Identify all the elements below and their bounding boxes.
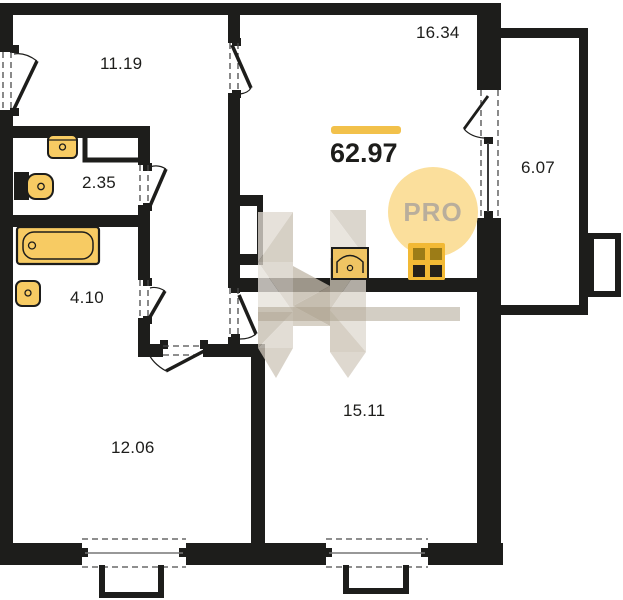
bath-sink-icon [16,281,40,306]
sink-icon [48,135,77,158]
entrance-door [14,61,37,109]
door-12-06 [166,350,206,371]
room-area-label-2-35: 2.35 [82,173,116,193]
floor-plan: 11.19 16.34 2.35 4.10 6.07 12.06 15.11 6… [0,0,623,600]
room-area-label-15-11: 15.11 [343,401,385,421]
room-area-label-4-10: 4.10 [70,288,104,308]
balcony-door [464,96,488,129]
window-sill-right [346,565,406,591]
bathtub-icon [17,227,99,264]
door-wc [150,169,166,206]
room-area-label-16-34: 16.34 [416,23,460,43]
pro-badge-label: PRO [388,167,478,257]
room-area-label-6-07: 6.07 [521,158,555,178]
door-15-11 [239,295,256,334]
neighbor-balcony [591,236,618,294]
toilet-icon [14,172,53,200]
total-area-accent-bar [331,126,401,134]
kitchen-sink-icon [332,248,368,279]
door-bathroom [150,291,165,317]
room-area-label-11-19: 11.19 [100,54,142,74]
room-area-label-12-06: 12.06 [111,438,155,458]
window-sill-left [102,565,161,595]
total-area-label: 62.97 [330,138,398,169]
door-16-34 [232,45,251,88]
